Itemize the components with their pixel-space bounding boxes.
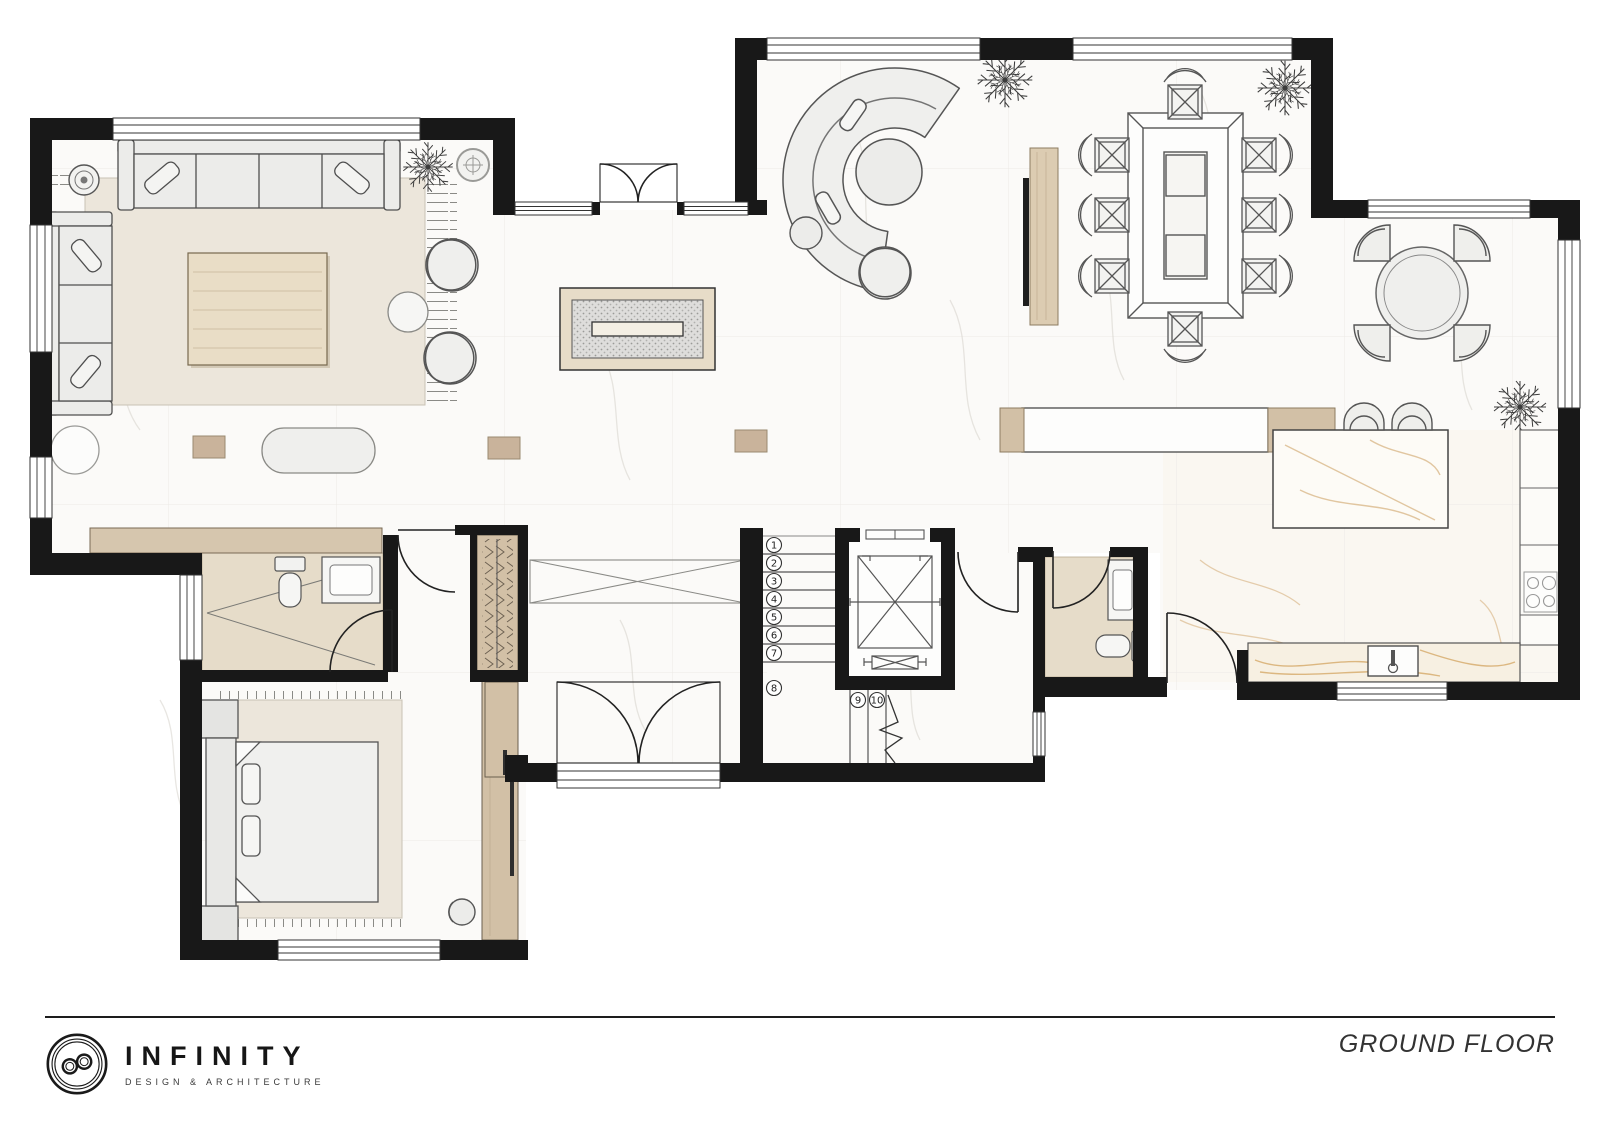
accent-chair xyxy=(424,332,476,384)
kitchen-counter-bottom xyxy=(1248,643,1520,682)
window xyxy=(1368,200,1530,218)
pouf xyxy=(790,217,822,249)
kitchen-island xyxy=(1273,430,1448,528)
headboard xyxy=(206,738,236,906)
bedroom-stool xyxy=(449,899,475,925)
window xyxy=(767,38,980,60)
window xyxy=(515,202,592,215)
step-number: 1 xyxy=(771,541,777,552)
brand-tagline: DESIGN & ARCHITECTURE xyxy=(125,1077,325,1087)
window xyxy=(1337,682,1447,700)
window xyxy=(180,575,202,660)
double-door-north xyxy=(600,164,677,202)
step-number: 7 xyxy=(771,649,777,660)
window xyxy=(1033,712,1045,756)
tv xyxy=(1023,178,1029,306)
coffee-table xyxy=(188,253,330,368)
infinity-logo-icon xyxy=(45,1032,109,1096)
window xyxy=(113,118,420,140)
hall-cabinet xyxy=(90,528,382,553)
floor-plan-sheet: 1 2 3 4 5 6 7 8 9 10 INFINITY DESIGN & A… xyxy=(0,0,1600,1131)
bench-oval xyxy=(262,428,375,473)
wc-vanity xyxy=(1108,560,1137,620)
rug-fringe-top xyxy=(218,691,402,699)
elevator xyxy=(835,528,955,690)
step-number: 8 xyxy=(771,684,777,695)
nightstand xyxy=(200,700,238,738)
hanging-closet xyxy=(477,535,518,672)
step-number: 2 xyxy=(771,559,777,570)
plant xyxy=(403,142,452,191)
floor-cushion xyxy=(193,436,225,458)
sofa-side xyxy=(45,212,112,415)
sheet-title: GROUND FLOOR xyxy=(1339,1030,1555,1059)
window xyxy=(1558,240,1580,408)
floor-cushion xyxy=(735,430,767,452)
rug-fringe-bottom xyxy=(218,919,402,927)
step-number: 4 xyxy=(771,595,777,606)
footer-divider xyxy=(45,1016,1555,1018)
side-table xyxy=(388,292,428,332)
ceiling-fixture xyxy=(457,149,489,181)
step-number: 3 xyxy=(771,577,777,588)
brand-block: INFINITY DESIGN & ARCHITECTURE xyxy=(45,1032,325,1096)
lounge-chair xyxy=(859,247,911,299)
pillow xyxy=(242,816,260,856)
step-number: 9 xyxy=(855,696,861,707)
bathroom-vanity xyxy=(322,557,380,603)
entry-step xyxy=(557,763,720,788)
dining-table xyxy=(1128,113,1243,318)
window xyxy=(30,225,52,352)
window xyxy=(684,202,748,215)
step-number: 6 xyxy=(771,631,777,642)
pillow xyxy=(242,764,260,804)
nightstand xyxy=(200,906,238,944)
step-number: 5 xyxy=(771,613,777,624)
floor-cushion xyxy=(488,437,520,459)
step-number: 10 xyxy=(871,696,884,707)
window xyxy=(278,940,440,960)
toilet xyxy=(275,557,305,607)
window xyxy=(1073,38,1292,60)
accent-chair xyxy=(426,239,478,291)
window xyxy=(30,457,52,518)
sofa-large xyxy=(118,140,400,210)
kitchen-counter-right xyxy=(1520,430,1560,645)
brand-name: INFINITY xyxy=(125,1041,325,1072)
floor-plan-drawing: 1 2 3 4 5 6 7 8 9 10 xyxy=(0,0,1600,1010)
plant xyxy=(1494,381,1546,433)
ottoman xyxy=(856,139,922,205)
plant xyxy=(978,53,1033,108)
fireplace xyxy=(560,288,715,370)
round-table xyxy=(51,426,99,474)
plant xyxy=(1258,61,1313,116)
